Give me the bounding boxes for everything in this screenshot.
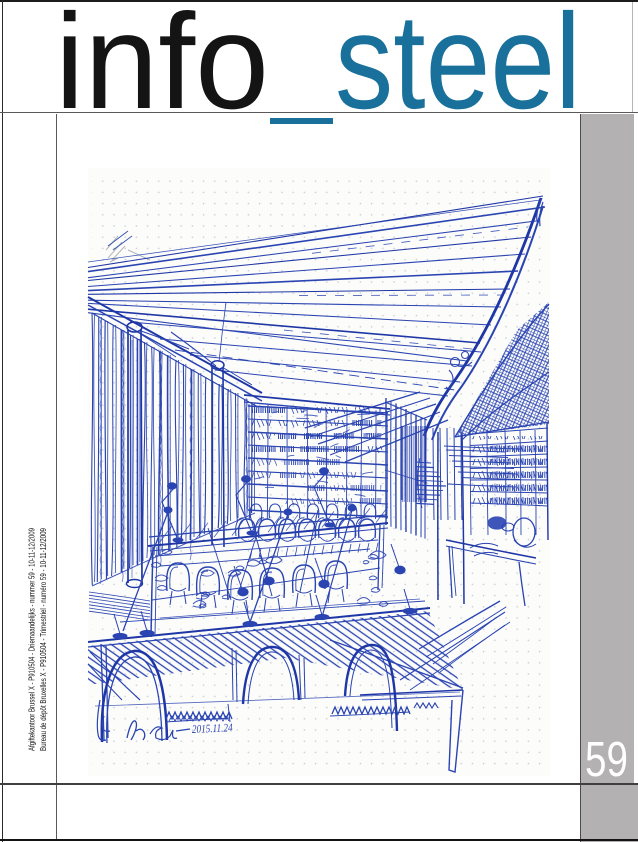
svg-text:Afgiftekantoor Brussel X - P91: Afgiftekantoor Brussel X - P910504 - Dri… (27, 528, 37, 751)
svg-text:2015.11.24: 2015.11.24 (192, 722, 233, 736)
svg-text:info: info (55, 0, 269, 130)
svg-text:59: 59 (585, 733, 628, 784)
svg-text:steel: steel (335, 0, 581, 130)
svg-text:Bureau de dépôt Bruxelles X -: Bureau de dépôt Bruxelles X - P910504 - … (38, 528, 48, 751)
